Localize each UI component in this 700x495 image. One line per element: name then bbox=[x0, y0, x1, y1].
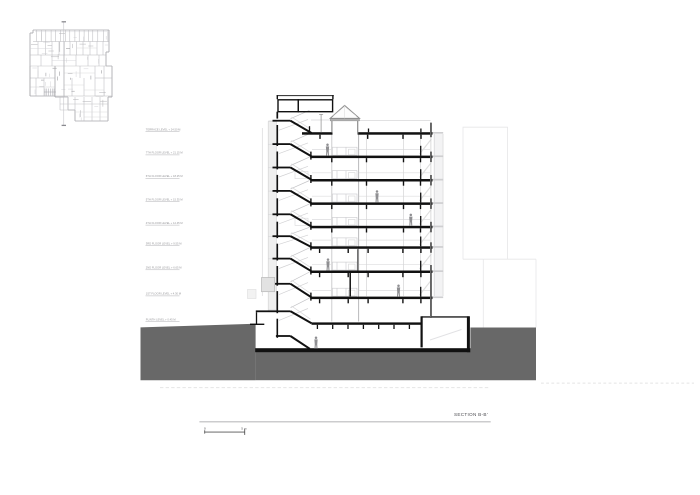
svg-text:1ST FLOOR LEVEL + 4.30 M: 1ST FLOOR LEVEL + 4.30 M bbox=[146, 292, 182, 296]
svg-text:2ND FLOOR LEVEL + 6.65 M: 2ND FLOOR LEVEL + 6.65 M bbox=[146, 266, 182, 270]
svg-text:0: 0 bbox=[204, 426, 206, 430]
svg-text:PLINTH LEVEL + 0.45 M: PLINTH LEVEL + 0.45 M bbox=[146, 318, 177, 322]
svg-text:TERRACE LEVEL + 24.50 M: TERRACE LEVEL + 24.50 M bbox=[146, 127, 181, 131]
svg-text:5TH FLOOR LEVEL + 15.35 M: 5TH FLOOR LEVEL + 15.35 M bbox=[146, 198, 184, 202]
svg-text:3RD FLOOR LEVEL + 9.55 M: 3RD FLOOR LEVEL + 9.55 M bbox=[146, 241, 182, 245]
svg-text:7TH FLOOR LEVEL + 21.15 M: 7TH FLOOR LEVEL + 21.15 M bbox=[146, 151, 184, 155]
svg-text:SECTION B-B': SECTION B-B' bbox=[454, 412, 488, 417]
svg-text:5 m: 5 m bbox=[241, 427, 247, 431]
svg-text:4TH FLOOR LEVEL + 12.45 M: 4TH FLOOR LEVEL + 12.45 M bbox=[146, 221, 184, 225]
svg-text:6TH FLOOR LEVEL + 18.25 M: 6TH FLOOR LEVEL + 18.25 M bbox=[146, 174, 184, 178]
